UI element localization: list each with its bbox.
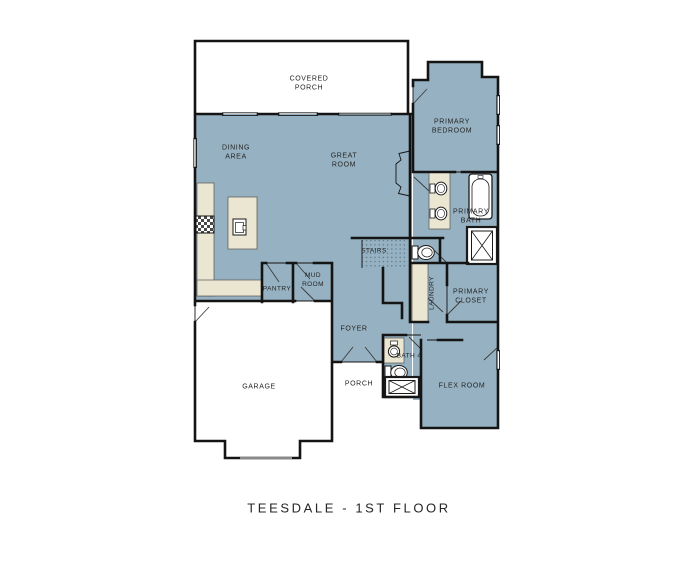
room-label-stairs: STAIRS	[361, 248, 386, 257]
vanity-sink-icon	[430, 182, 447, 195]
floor-plan-page: COVERED PORCH DINING AREA GREAT ROOM PRI…	[0, 0, 686, 567]
room-label-flex-room: FLEX ROOM	[439, 381, 486, 390]
room-label-primary-bath: PRIMARY BATH	[453, 208, 489, 227]
kitchen-counter-left	[197, 183, 214, 296]
kitchen-counter-bottom	[197, 280, 262, 296]
room-label-covered-porch: COVERED PORCH	[290, 75, 329, 94]
vanity-sink-icon	[430, 207, 447, 220]
shower-icon	[385, 377, 419, 397]
room-label-laundry: LAUNDRY	[429, 276, 438, 310]
room-label-bath-4: BATH 4	[397, 353, 422, 362]
plan-title: TEESDALE - 1ST FLOOR	[247, 501, 450, 516]
room-label-porch: PORCH	[345, 379, 373, 388]
room-label-dining-area: DINING AREA	[222, 144, 250, 163]
primary-bath-vanity	[429, 172, 450, 229]
floor-plan-drawing	[0, 0, 686, 567]
laundry-counter	[412, 263, 428, 322]
room-label-foyer: FOYER	[340, 324, 367, 333]
room-label-primary-closet: PRIMARY CLOSET	[453, 288, 489, 307]
island-sink-icon	[233, 219, 246, 235]
room-label-garage: GARAGE	[242, 382, 276, 391]
room-label-mud-room: MUD ROOM	[302, 272, 324, 290]
stove-icon	[196, 216, 214, 233]
shower-icon	[467, 227, 497, 264]
room-label-primary-bedroom: PRIMARY BEDROOM	[432, 118, 472, 137]
room-label-great-room: GREAT ROOM	[331, 152, 358, 171]
toilet-icon	[412, 246, 434, 260]
room-label-pantry: PANTRY	[263, 286, 291, 295]
